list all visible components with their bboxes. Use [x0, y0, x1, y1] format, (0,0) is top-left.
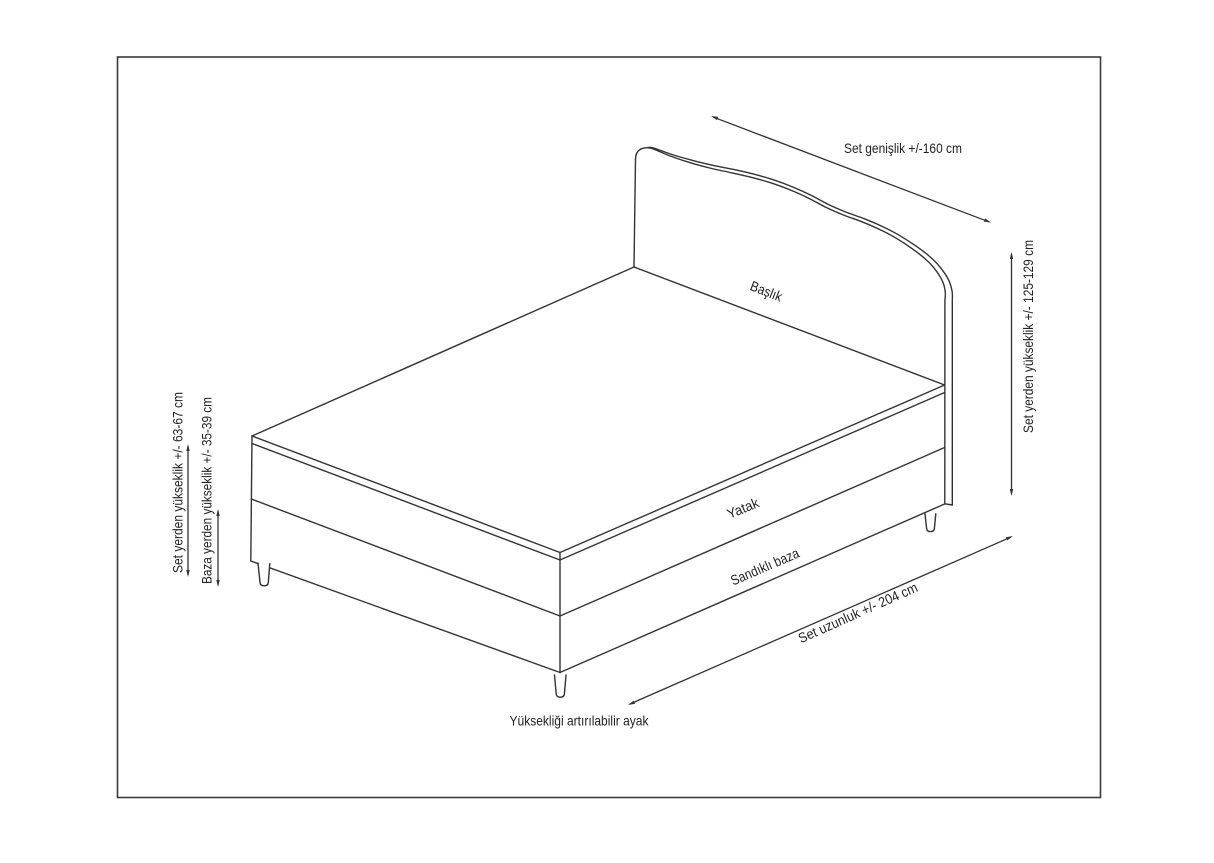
- svg-text:Set genişlik +/-160 cm: Set genişlik +/-160 cm: [844, 140, 962, 156]
- svg-text:Set yerden yükseklik +/- 125-1: Set yerden yükseklik +/- 125-129 cm: [1020, 240, 1036, 433]
- svg-text:Yüksekliği artırılabilir ayak: Yüksekliği artırılabilir ayak: [510, 713, 650, 729]
- svg-text:Baza yerden yükseklik +/- 35-3: Baza yerden yükseklik +/- 35-39 cm: [199, 397, 215, 584]
- svg-text:Set yerden yükseklik +/- 63-67: Set yerden yükseklik +/- 63-67 cm: [170, 392, 186, 573]
